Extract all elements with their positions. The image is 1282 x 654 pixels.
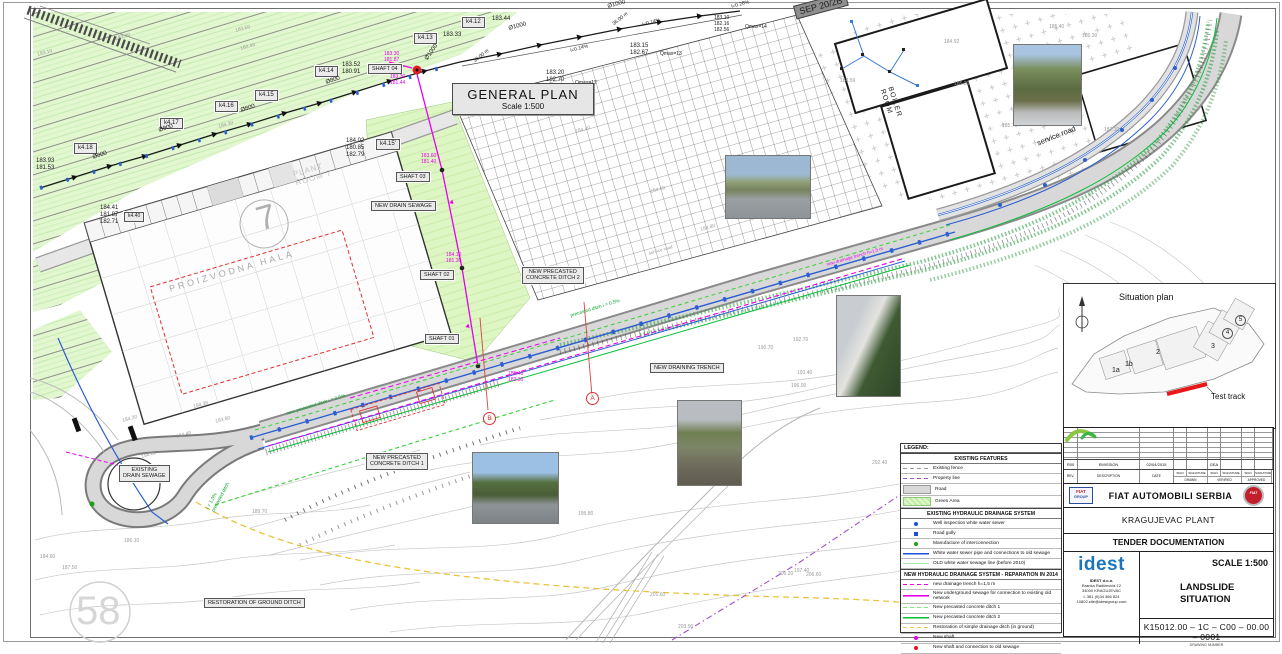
label-k4-12: k4.12 — [462, 17, 485, 28]
label-k4-15p: k4.15' — [376, 139, 400, 150]
contour-label: 201.60 — [650, 593, 665, 599]
label-ditch-1: NEW PRECASTED CONCRETE DITCH 1 — [366, 453, 428, 470]
elevation-label: 185.40 182.30 — [508, 372, 523, 384]
revision-header-row: REV. DESCRIPTION DATE SIGNSIGNATURE SIGN… — [1064, 469, 1273, 484]
elevation-label: 186.10 — [124, 539, 139, 545]
label-k4-15: k4.15 — [255, 90, 278, 101]
legend-label: Existing fence — [933, 466, 1059, 471]
label-shaft-02: SHAFT 02 — [420, 270, 454, 280]
drawing-number-strip: K15012.00 – 1C – C00 – 00.00 – 0001 DRAW… — [1140, 618, 1273, 644]
legend-row: New underground sewage for connection to… — [901, 590, 1061, 604]
title-block-bottom: idest IDEST d.o.o.Branka Radičevića 1234… — [1064, 552, 1273, 644]
zone-label-2: 2 — [1156, 349, 1160, 356]
contour-label: 206.60 — [806, 573, 821, 579]
idest-address: IDEST d.o.o.Branka Radičevića 1234000 KR… — [1064, 578, 1139, 604]
legend-label: new drainage trench h=1,5 m — [933, 582, 1059, 587]
elevation-label: 183.33 — [443, 32, 461, 39]
dash-yellow-swatch — [903, 625, 929, 632]
contour-label: 196.00 — [791, 384, 806, 390]
elevation-label: 183.52 180.91 — [342, 62, 360, 76]
drawing-title-line2: SITUATION — [1180, 594, 1234, 606]
legend-label: Property line — [933, 476, 1059, 481]
legend-title: LEGEND: — [901, 444, 1061, 453]
sq-blue-swatch — [903, 530, 929, 537]
drawing-info-cell: SCALE 1:500 LANDSLIDE SITUATION K15012.0… — [1140, 552, 1273, 644]
photo-hillside — [1013, 44, 1082, 126]
legend-label: New shaft — [933, 635, 1059, 640]
date-header: DATE — [1140, 470, 1174, 483]
flow-arrow: ▲ — [464, 322, 472, 331]
label-k4-13: k4.13 — [414, 33, 437, 44]
plan-scale: Scale 1:500 — [453, 102, 593, 111]
section-marker-b: B — [483, 412, 496, 425]
label-ditch-2: NEW PRECASTED CONCRETE DITCH 2 — [522, 267, 584, 284]
green-area-swatch — [903, 497, 931, 506]
dot-red-swatch — [903, 645, 929, 652]
fiat-group-logo-text: FIAT — [1070, 488, 1092, 495]
idest-logo-cell: idest IDEST d.o.o.Branka Radičevića 1234… — [1064, 552, 1140, 644]
elevation-label: 184.41 181.87 182.71 — [100, 205, 118, 226]
verified-header: VERIFIED — [1208, 477, 1242, 484]
legend-label: OLD white water sewage line (before 2010… — [933, 561, 1059, 566]
zone-label-1a: 1a — [1112, 367, 1120, 374]
elevation-label: 185.30 — [954, 82, 969, 88]
zone-label-4: 4 — [1222, 328, 1233, 339]
label-k4-16: k4.16 — [215, 101, 238, 112]
legend-label: Manufacture of interconnection — [933, 541, 1059, 546]
plant-name: KRAGUJEVAC PLANT — [1064, 508, 1273, 534]
section-marker-a: A — [586, 392, 599, 405]
elevation-label: 184.02 180.85 182.79 — [346, 138, 364, 159]
contour-label: 193.40 — [797, 371, 812, 377]
legend-row: New precasted concrete ditch 2 — [901, 614, 1061, 624]
situation-plan-drawing — [1064, 284, 1275, 428]
elevation-label: 183.10 182.16 182.56 — [714, 16, 729, 33]
zone-label-5: 5 — [1235, 315, 1246, 326]
general-plan-title-box: GENERAL PLAN Scale 1:500 — [452, 83, 594, 115]
revision-cell — [1221, 460, 1242, 469]
label-shaft-03: SHAFT 03 — [396, 172, 430, 182]
legend-row: Manufacture of interconnection — [901, 539, 1061, 549]
line-blue-swatch — [903, 550, 929, 557]
legend-label: Road gully — [933, 531, 1059, 536]
elevation-label: 184.92 — [944, 40, 959, 46]
contour-label: 203.90 — [678, 625, 693, 631]
legend-row: OLD white water sewage line (before 2010… — [901, 559, 1061, 569]
revision-values-row: R00EMISSION02/04/2015GEA — [1064, 459, 1273, 469]
elevation-label: 183.20 182.70 — [546, 70, 564, 84]
legend-row: New precasted concrete ditch 1 — [901, 604, 1061, 614]
drawing-title: LANDSLIDE SITUATION — [1180, 582, 1234, 606]
legend-label: Well inspection white water sewer — [933, 521, 1059, 526]
photo-drain-ditch — [677, 400, 742, 486]
legend-sections: EXISTING FEATURESExisting fenceProperty … — [901, 453, 1061, 654]
revision-cell — [1174, 460, 1187, 469]
signature-headers: SIGNSIGNATURE SIGNSIGNATURE SIGNSIGNATUR… — [1174, 470, 1273, 483]
revision-cell — [1187, 460, 1208, 469]
drawn-header: DRAWN — [1174, 477, 1208, 484]
drawing-title-line1: LANDSLIDE — [1180, 582, 1234, 594]
label-new-drain-sewage: NEW DRAIN SEWAGE — [371, 201, 436, 211]
line-green-swatch — [903, 615, 929, 622]
elevation-label: 183.93 181.53 — [36, 158, 54, 172]
rev-header: REV. — [1064, 470, 1078, 483]
label-shaft-01: SHAFT 01 — [425, 334, 459, 344]
legend-row: Well inspection white water sewer — [901, 519, 1061, 529]
legend-row: New shaft — [901, 634, 1061, 644]
legend-label: Restoration of simple drainage ditch (in… — [933, 625, 1059, 630]
revision-cell: 02/04/2015 — [1140, 460, 1174, 469]
label-k4-18: k4.18 — [74, 143, 97, 154]
elevation-label: 183.60 181.40 — [421, 154, 436, 166]
elevation-label: 183.44 — [492, 16, 510, 23]
plan-title: GENERAL PLAN — [453, 87, 593, 102]
legend-section-header: EXISTING FEATURES — [901, 453, 1061, 464]
line-ltgreen-swatch — [903, 560, 929, 567]
revision-cell — [1255, 460, 1273, 469]
zone-label-3: 3 — [1211, 343, 1215, 350]
fiat-group-logo: FIAT GROUP — [1069, 487, 1093, 504]
label-restoration-ditch: RESTORATION OF GROUND DITCH — [204, 598, 305, 608]
dash-purple-swatch — [903, 475, 929, 482]
company-name: FIAT AUTOMOBILI SERBIA — [1098, 491, 1243, 501]
fiat-badge-logo: FIAT — [1243, 485, 1264, 506]
elevation-label: 184.10 181.30 — [446, 253, 461, 265]
revision-cell: EMISSION — [1078, 460, 1140, 469]
document-type: TENDER DOCUMENTATION — [1064, 534, 1273, 552]
legend-label: White water sewer pipe and connections t… — [933, 551, 1059, 556]
dot-magenta-swatch — [903, 635, 929, 642]
legend-label: New precasted concrete ditch 2 — [933, 615, 1059, 620]
dash-green-swatch — [903, 605, 929, 612]
label-k4-40: k4.40 — [124, 212, 144, 222]
line-magenta-swatch — [903, 593, 929, 600]
label-shaft-04: SHAFT 04 — [368, 64, 402, 74]
elevation-label: 184.60 — [40, 555, 55, 561]
elevation-label: 183.15 182.67 — [630, 43, 648, 57]
address-line: 10802.site@idestgroup.com — [1064, 599, 1139, 604]
label-draining-trench: NEW DRAINING TRENCH — [650, 363, 724, 373]
contour-label: 195.80 — [578, 512, 593, 518]
legend-row: Road — [901, 484, 1061, 496]
zone-label-1b: 1b — [1125, 361, 1133, 368]
watermark-58: 58 — [76, 588, 121, 634]
elevation-label: 184.59 — [840, 79, 855, 85]
elevation-label: 187.10 — [1104, 128, 1119, 134]
legend-row: Road gully — [901, 529, 1061, 539]
company-row: FIAT GROUP FIAT AUTOMOBILI SERBIA FIAT — [1064, 484, 1273, 508]
elevation-label: 185.40 — [1049, 25, 1064, 31]
idest-swoosh-icon — [1064, 428, 1098, 442]
fiat-group-logo-subtext: GROUP — [1070, 495, 1092, 500]
drawing-sheet: k4.12k4.13k4.14k4.15k4.16k4.17k4.18k4.15… — [0, 0, 1282, 643]
photo-road-median — [725, 155, 811, 219]
contour-label: 190.70 — [758, 346, 773, 352]
dash-gray-swatch — [903, 465, 929, 472]
legend-label: New shaft and connection to old sewage — [933, 645, 1059, 650]
contour-label: 206.20 — [778, 572, 793, 578]
flow-label: Qmax=13 — [660, 52, 682, 58]
dot-green-swatch — [903, 540, 929, 547]
legend-label: New precasted concrete ditch 1 — [933, 605, 1059, 610]
north-arrow-icon — [1076, 296, 1088, 332]
revision-cell: GEA — [1208, 460, 1221, 469]
label-existing-drain-sewage: EXISTING DRAIN SEWAGE — [119, 465, 170, 482]
approved-header: APPROVED — [1242, 477, 1272, 484]
legend-row: Green Area — [901, 496, 1061, 508]
contour-label: 189.70 — [252, 510, 267, 516]
elevation-label: 183.30 181.44 — [390, 75, 405, 87]
flow-arrow: ▲ — [448, 198, 456, 207]
legend-section-header: EXISTING HYDRAULIC DRAINAGE SYSTEM — [901, 508, 1061, 519]
legend-row: Existing fence — [901, 464, 1061, 474]
label-k4-14: k4.14 — [315, 66, 338, 77]
contour-label: 192.70 — [793, 338, 808, 344]
flow-label: Qmax=14 — [745, 25, 767, 31]
road-swatch — [903, 485, 931, 494]
revision-cell — [1242, 460, 1255, 469]
elevation-label: 187.50 — [62, 566, 77, 572]
contour-label: 202.40 — [872, 461, 887, 467]
photo-retaining-wall — [836, 295, 901, 397]
legend-row: New shaft and connection to old sewage — [901, 644, 1061, 654]
drawing-number: K15012.00 – 1C – C00 – 00.00 – 0001 — [1140, 622, 1273, 642]
photo-highway-slope — [472, 452, 559, 524]
legend-row: White water sewer pipe and connections t… — [901, 549, 1061, 559]
legend-label: Green Area — [935, 499, 1059, 504]
elevation-label: 186.30 — [1082, 34, 1097, 40]
elevation-label: 183.30 181.87 — [384, 52, 399, 64]
legend-row: Restoration of simple drainage ditch (in… — [901, 624, 1061, 634]
situation-plan-title: Situation plan — [1119, 292, 1174, 302]
dot-blue-swatch — [903, 520, 929, 527]
description-header: DESCRIPTION — [1078, 470, 1140, 483]
revision-cell: R00 — [1064, 460, 1078, 469]
legend-section-header: NEW HYDRAULIC DRAINAGE SYSTEM - REPARATI… — [901, 569, 1061, 580]
legend-label: New underground sewage for connection to… — [933, 591, 1059, 602]
idest-logo: idest — [1064, 556, 1139, 574]
test-track-label: Test track — [1211, 392, 1245, 401]
legend-label: Road — [935, 487, 1059, 492]
drawing-number-caption: DRAWING NUMBER — [1140, 643, 1273, 647]
legend-row: new drainage trench h=1,5 m — [901, 580, 1061, 590]
situation-plan-inset: Situation plan 1a1b2345 Test track — [1063, 283, 1276, 429]
title-block: R00EMISSION02/04/2015GEA REV. DESCRIPTIO… — [1063, 427, 1274, 637]
legend-panel: LEGEND: EXISTING FEATURESExisting fenceP… — [900, 443, 1062, 633]
dash-magenta-swatch — [903, 581, 929, 588]
legend-row: Property line — [901, 474, 1061, 484]
scale-label: SCALE 1:500 — [1212, 558, 1268, 568]
